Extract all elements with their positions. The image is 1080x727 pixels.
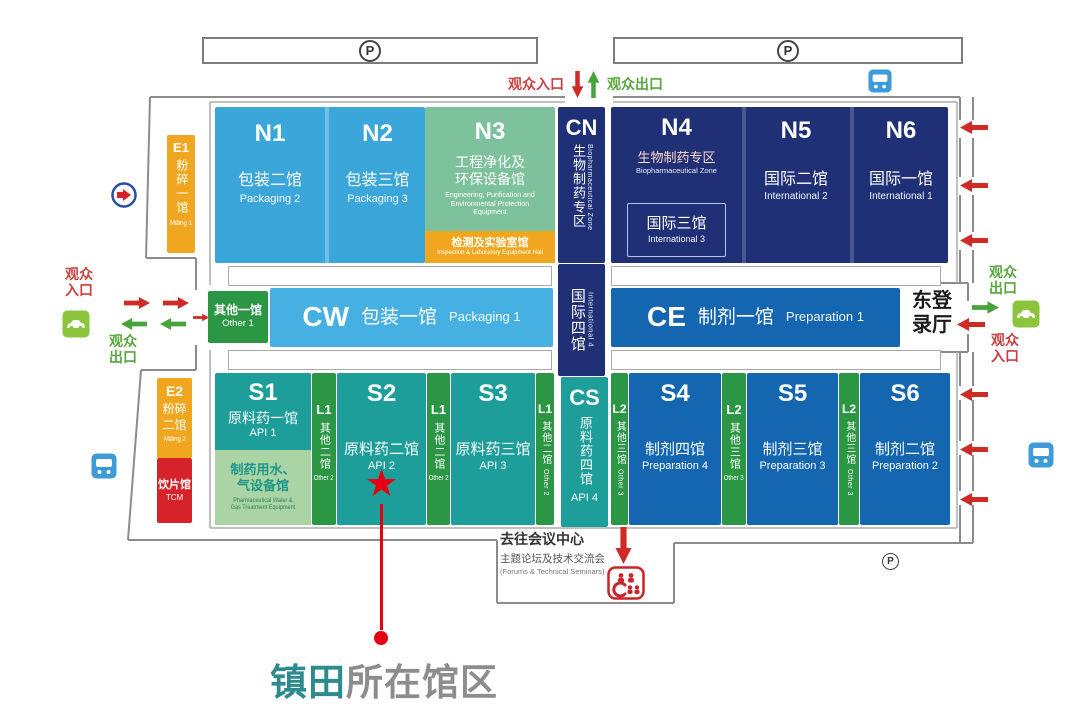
hall-e2: E2 粉碎 二馆 Milling 2 — [157, 378, 192, 458]
hall-name-en: Other 3 — [724, 475, 744, 483]
hall-name: 国际一馆 — [869, 171, 933, 189]
hall-cs: CS 原料药四馆 API 4 — [561, 377, 608, 527]
hall-s5: S5 制剂三馆 Preparation 3 — [747, 373, 838, 525]
hall-code: N3 — [475, 118, 506, 146]
hall-name-en: Pharmaceutical Water & — [233, 497, 292, 504]
location-star-icon: ★ — [364, 465, 398, 503]
conference-meeting-icon — [607, 566, 645, 600]
hall-name: 原料药一馆 — [228, 410, 298, 426]
top-visitor-exit-label: 观众出口 — [603, 76, 667, 92]
hall-code: S6 — [890, 380, 919, 408]
entrance-left-arrow-icon — [960, 493, 988, 506]
hall-name-en: Preparation 1 — [786, 310, 864, 325]
hall-l1-strip: L1 其他二馆 Other 2 — [312, 373, 336, 525]
bus-icon — [868, 69, 892, 93]
hall-name-en: International 3 — [648, 234, 705, 244]
hall-name-en: Packaging 1 — [449, 310, 521, 325]
hall-code: CW — [302, 301, 349, 333]
hall-other-1: 其他一馆 Other 1 — [208, 291, 268, 343]
entrance-right-arrow-icon — [193, 312, 209, 323]
hall-name: 包装一馆 — [361, 307, 437, 329]
hall-n6: N6 国际一馆 International 1 — [854, 107, 948, 263]
parking-strip-left: P — [202, 37, 538, 64]
hall-name-en: International 4 — [586, 292, 595, 347]
hall-name-en: API 4 — [571, 492, 598, 505]
hall-name: 包装三馆 — [345, 172, 409, 190]
hall-name: 检测及实验室馆 — [452, 237, 529, 250]
left-visitor-exit-label: 观众出口 — [100, 333, 146, 365]
hall-name: 工程净化及 — [455, 154, 525, 170]
hall-name-en: API 1 — [250, 427, 277, 440]
zone-name-en: Biopharmaceutical Zone — [636, 167, 717, 176]
hall-name: 粉碎 — [162, 403, 186, 417]
top-visitor-entrance-label: 观众入口 — [504, 76, 568, 92]
hall-block-n4-n5-n6: N4 生物制药专区 Biopharmaceutical Zone 国际三馆 In… — [611, 107, 948, 263]
hall-international-4: 国际四馆 International 4 — [558, 264, 605, 376]
hall-code: E1 — [173, 141, 189, 156]
parking-strip-right: P — [613, 37, 963, 64]
exit-left-arrow-icon — [160, 317, 186, 331]
car-icon — [1012, 300, 1040, 328]
callout-line — [380, 504, 383, 630]
metro-logo-icon — [110, 181, 138, 209]
hall-name: 国际四馆 — [569, 288, 586, 352]
hall-name: 制剂四馆 — [645, 441, 705, 458]
hall-name: 国际二馆 — [764, 171, 828, 189]
hall-code: S1 — [248, 379, 277, 407]
hall-name: 原料药三馆 — [455, 441, 530, 458]
hall-name: 环保设备馆 — [455, 171, 525, 187]
hall-name-en: Other 3 — [615, 469, 623, 496]
hall-code: L1 — [538, 403, 552, 417]
corridor — [611, 266, 941, 286]
entrance-left-arrow-icon — [960, 388, 988, 401]
hall-name-en: Packaging 3 — [347, 193, 408, 206]
hall-name-en: Gas Treatment Equipment — [231, 504, 295, 511]
hall-divider — [325, 107, 329, 263]
hall-code: S5 — [778, 380, 807, 408]
hall-n3: N3 工程净化及 环保设备馆 Engineering, Purification… — [425, 107, 555, 263]
hall-name-en: International 2 — [764, 191, 827, 203]
exhibition-floor-plan: P P 观众入口 观众出口 E1 粉碎一馆 Milling 1 观众入口 — [0, 0, 1080, 727]
hall-name: 其他二馆 — [318, 422, 331, 470]
hall-name: 制药用水、 — [230, 463, 295, 478]
corridor — [228, 350, 552, 370]
hall-name-en: Milling 2 — [164, 436, 186, 444]
hall-code: L2 — [842, 403, 856, 417]
hall-tcm: 饮片馆 TCM — [157, 458, 192, 523]
callout-dot — [374, 631, 388, 645]
hall-name-en: Other 1 — [222, 319, 254, 330]
hall-cn: CN 生物制药专区 Biopharmaceutical Zone — [558, 107, 605, 263]
hall-n5: N5 国际二馆 International 2 — [745, 107, 847, 263]
hall-name: 其他三馆 — [728, 422, 741, 470]
hall-l2-strip: L2 其他三馆 Other 3 — [722, 373, 746, 525]
hall-name: 饮片馆 — [158, 479, 191, 492]
hall-name: 原料药四馆 — [577, 416, 592, 486]
parking-icon-small: P — [882, 553, 899, 570]
hall-name: 粉碎一馆 — [174, 159, 188, 215]
hall-n4: N4 生物制药专区 Biopharmaceutical Zone 国际三馆 In… — [611, 107, 742, 263]
hall-code: CS — [569, 385, 600, 410]
hall-s3: S3 原料药三馆 API 3 — [451, 373, 535, 525]
hall-n3-inspection-lab: 检测及实验室馆 Inspection & Laboratory Equipmen… — [425, 231, 555, 263]
right-visitor-entrance-label: 观众入口 — [982, 332, 1028, 364]
hall-e1: E1 粉碎一馆 Milling 1 — [167, 135, 195, 253]
hall-name: 国际三馆 — [646, 215, 706, 232]
hall-l2-strip: L2 其他三馆 Other 3 — [839, 373, 859, 525]
hall-name: 制剂一馆 — [698, 307, 774, 329]
bus-icon — [91, 453, 117, 479]
entrance-left-arrow-icon — [956, 318, 986, 331]
hall-code: S2 — [367, 380, 396, 408]
hall-name-en: Preparation 3 — [759, 460, 825, 473]
right-visitor-exit-label: 观众出口 — [980, 264, 1026, 296]
hall-code: N5 — [781, 117, 812, 145]
hall-name: 其他二馆 — [539, 421, 551, 465]
hall-name: 制剂二馆 — [875, 441, 935, 458]
exit-up-arrow-icon — [587, 71, 600, 98]
hall-name-en: Other 2 — [314, 475, 334, 483]
zone-name: 生物制药专区 — [637, 151, 715, 166]
annotation-rest: 所在馆区 — [346, 662, 498, 703]
hall-n1: N1 包装二馆 Packaging 2 — [215, 107, 325, 263]
hall-pharma-water-gas: 制药用水、 气设备馆 Pharmaceutical Water & Gas Tr… — [215, 450, 311, 525]
hall-name: 气设备馆 — [237, 479, 289, 494]
car-icon — [62, 310, 90, 338]
hall-block-n1-n2: N1 包装二馆 Packaging 2 N2 包装三馆 Packaging 3 — [215, 107, 425, 263]
hall-name-en: TCM — [166, 493, 183, 502]
annotation-highlight: 镇田 — [270, 662, 346, 703]
hall-name: 其他二馆 — [432, 422, 445, 470]
hall-code: N6 — [886, 117, 917, 145]
hall-cw: CW 包装一馆 Packaging 1 — [270, 288, 553, 347]
hall-l2-strip: L2 其他三馆 Other 3 — [611, 373, 628, 525]
hall-name: 其他三馆 — [614, 421, 626, 465]
entrance-left-arrow-icon — [960, 121, 988, 134]
hall-code: L1 — [431, 403, 446, 418]
exit-left-arrow-icon — [121, 317, 147, 331]
hall-international-3: 国际三馆 International 3 — [627, 203, 726, 257]
hall-s6: S6 制剂二馆 Preparation 2 — [860, 373, 950, 525]
hall-code: S4 — [660, 380, 689, 408]
hall-name-en: Inspection & Laboratory Equipment Hall — [430, 250, 550, 257]
entrance-left-arrow-icon — [960, 179, 988, 192]
hall-name-en: Engineering, Purification and Environmen… — [434, 192, 546, 218]
hall-code: S3 — [478, 380, 507, 408]
hall-l1-strip: L1 其他二馆 Other 2 — [427, 373, 450, 525]
entrance-down-arrow-icon — [571, 71, 584, 98]
hall-name: 其他三馆 — [843, 421, 855, 465]
hall-name-en: Packaging 2 — [240, 193, 301, 206]
hall-code: CN — [566, 115, 598, 140]
hall-code: CE — [647, 301, 686, 333]
hall-n2: N2 包装三馆 Packaging 3 — [330, 107, 425, 263]
corridor — [228, 266, 552, 286]
parking-icon: P — [359, 40, 381, 62]
hall-code: N2 — [362, 120, 393, 148]
conference-down-arrow-icon — [615, 527, 632, 564]
hall-name-en: International 1 — [869, 191, 932, 203]
hall-name-en: Other 2 — [541, 469, 549, 496]
entrance-right-arrow-icon — [163, 296, 189, 310]
hall-code: L2 — [612, 403, 626, 417]
bus-icon — [1028, 442, 1054, 468]
hall-code: N4 — [661, 114, 692, 142]
hall-s1: S1 原料药一馆 API 1 制药用水、 气设备馆 Pharmaceutical… — [215, 373, 311, 525]
hall-name: 二馆 — [162, 419, 186, 433]
hall-name: 原料药二馆 — [344, 441, 419, 458]
east-registration-hall-label: 东登录厅 — [903, 289, 961, 337]
hall-name-en: API 3 — [480, 460, 507, 473]
hall-code: N1 — [255, 120, 286, 148]
hall-name-en: Biopharmaceutical Zone — [585, 144, 593, 231]
hall-name-en: Preparation 2 — [872, 460, 938, 473]
annotation-text: 镇田所在馆区 — [270, 652, 498, 706]
hall-name: 其他一馆 — [214, 304, 262, 318]
hall-name: 生物制药专区 — [570, 144, 585, 228]
hall-name: 制剂三馆 — [762, 441, 822, 458]
hall-code: E2 — [166, 383, 183, 399]
hall-name-en: Other 2 — [429, 475, 449, 483]
hall-name-en: Other 3 — [845, 469, 853, 496]
corridor — [611, 350, 941, 370]
hall-ce: CE 制剂一馆 Preparation 1 — [611, 288, 900, 347]
hall-name-en: Preparation 4 — [642, 460, 708, 473]
hall-s4: S4 制剂四馆 Preparation 4 — [629, 373, 721, 525]
entrance-left-arrow-icon — [960, 234, 988, 247]
hall-name: 包装二馆 — [238, 172, 302, 190]
entrance-right-arrow-icon — [124, 296, 150, 310]
entrance-left-arrow-icon — [960, 443, 988, 456]
hall-s2: S2 原料药二馆 API 2 ★ — [337, 373, 426, 525]
left-visitor-entrance-label: 观众入口 — [56, 266, 102, 298]
hall-name-en: Milling 1 — [170, 220, 192, 228]
exit-right-arrow-icon — [972, 301, 999, 314]
hall-code: L2 — [726, 403, 741, 418]
hall-code: L1 — [316, 403, 331, 418]
hall-l1-strip: L1 其他二馆 Other 2 — [536, 373, 554, 525]
parking-icon: P — [777, 40, 799, 62]
